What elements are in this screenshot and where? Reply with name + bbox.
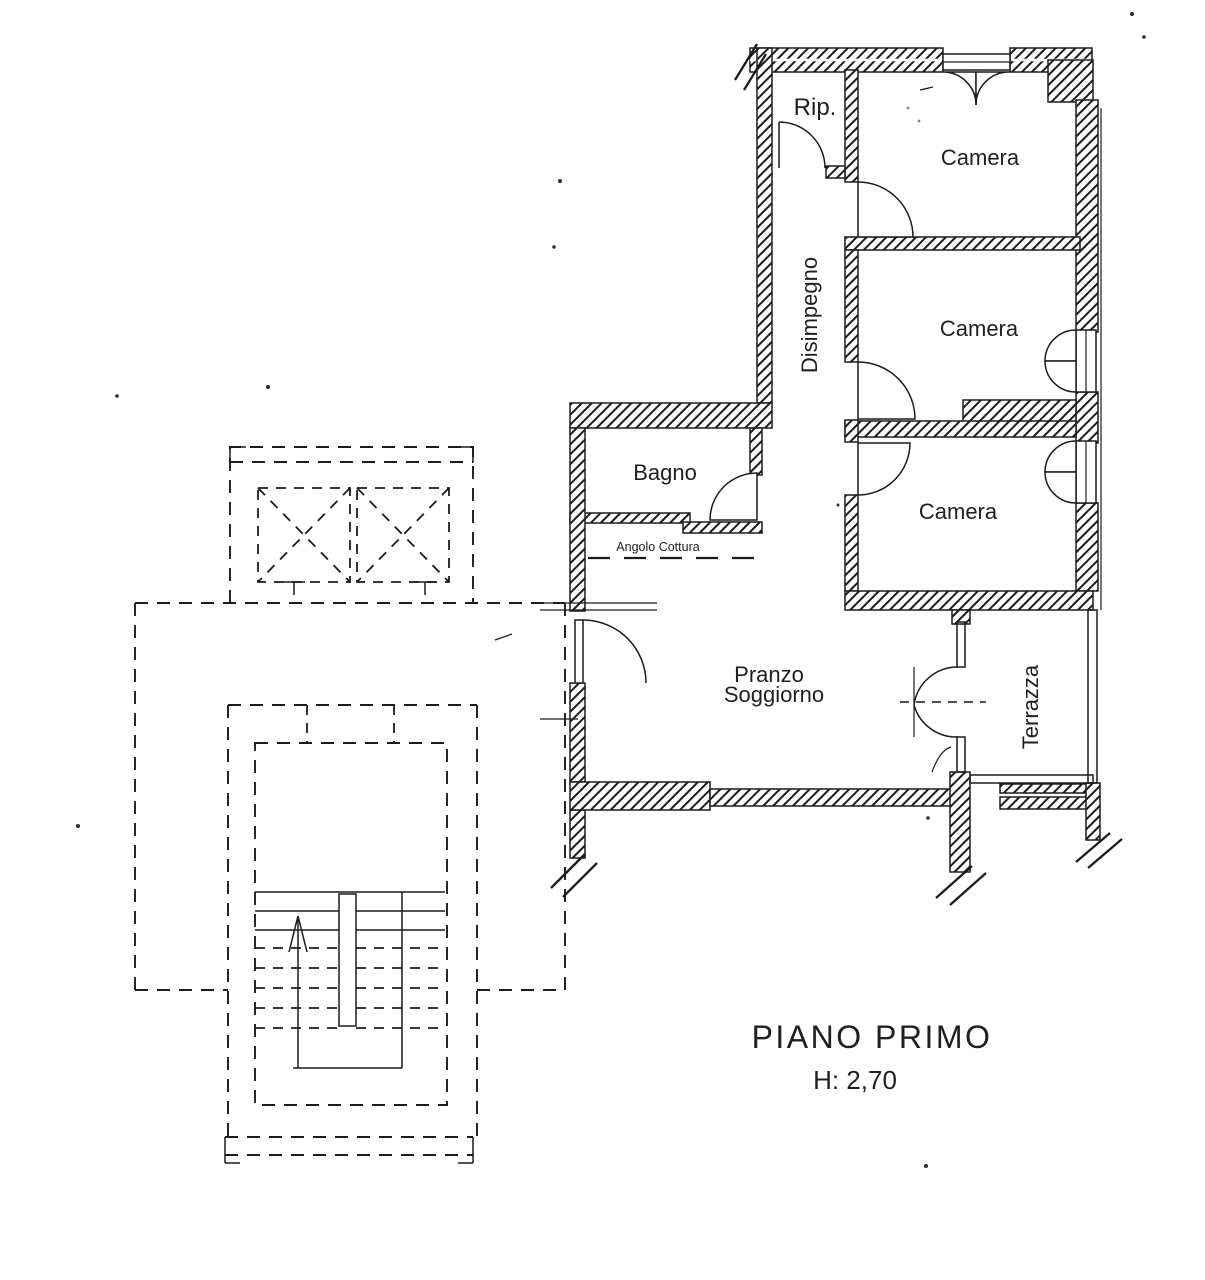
wall-left-stub [570,810,585,858]
wall-corridor-c [845,420,858,442]
window-camera-top [943,54,1010,105]
label-angolo-cottura: Angolo Cottura [616,540,699,554]
label-soggiorno: Soggiorno [724,682,824,707]
casement-up [1045,330,1076,361]
door-entry [540,603,657,683]
elevator-door-mark [414,582,436,595]
plan-title: PIANO PRIMO [752,1019,993,1055]
door-camera-top [858,182,913,237]
elevator-shafts [230,447,473,603]
wall-right-stub [1086,783,1100,840]
stair-up-arrow [289,916,307,1068]
wall-left-upper [757,48,772,403]
shaft-corner-brackets [230,447,473,463]
label-camera-middle: Camera [940,316,1019,341]
wall-bagno-top [570,403,772,428]
wall-left-low [570,683,585,782]
parapet-right [1088,610,1097,783]
wall-terrazza-bottom-b [1000,797,1092,809]
wall-rip-stub [826,166,845,178]
door-bagno [710,473,757,520]
wall-camera2-camera3-step [963,400,1076,423]
stairs [255,892,445,1068]
floor-plan-scan: Rip. Camera Camera Camera Disimpegno Bag… [0,0,1205,1280]
casement-up [1045,441,1076,472]
shaft-outline [230,447,473,603]
floor-plan-canvas: Rip. Camera Camera Camera Disimpegno Bag… [0,0,1205,1280]
label-camera-top: Camera [941,145,1020,170]
wall-bagno-floor-a [570,513,690,523]
label-rip: Rip. [794,94,837,121]
wall-right-lower [1076,503,1098,591]
glazed-wall-upper [957,622,965,667]
stray-arc [932,747,951,772]
casement-right [976,72,1010,105]
wall-terrazza-bottom-a [1000,784,1092,793]
window-camera-bottom [1045,441,1096,503]
elevator-left [258,488,350,595]
door-camera-middle [858,362,915,419]
wall-corner-ne [1048,60,1093,102]
label-bagno: Bagno [633,460,697,485]
wall-south-thin [710,789,952,806]
wall-right-upper [1076,100,1098,332]
wall-left-mid [570,428,585,611]
wall-bagno-floor-b [683,522,762,533]
label-disimpegno: Disimpegno [797,257,822,373]
glazed-wall-lower [957,737,965,772]
elevator-right [357,488,449,595]
wall-camera1-camera2 [845,237,1080,250]
door-rip [779,122,825,168]
window-camera-middle [1045,330,1096,392]
elevator-door-mark [283,582,305,595]
wall-terrazza-top [845,591,1093,610]
stairwell-corner-brackets [225,1137,473,1163]
scan-specks [76,12,1146,1168]
break-left-wall [551,854,597,897]
wall-camera2-camera3 [845,421,1076,437]
wall-corridor-a [845,70,858,182]
wall-corridor-b [845,250,858,362]
wall-corridor-d [845,495,858,591]
casement-left [943,72,976,105]
wall-pillar-south [950,772,970,872]
casement-down [1045,361,1076,392]
label-terrazza: Terrazza [1018,664,1043,749]
casement-down [1045,472,1076,503]
door-french-terrazza [900,667,986,737]
wall-right-mid [1076,392,1098,443]
stair-spine [339,894,356,1026]
door-camera-bottom [858,443,910,495]
wall-south-thick [570,782,710,810]
wall-bagno-right [750,428,762,475]
plan-height-note: H: 2,70 [813,1065,897,1095]
label-camera-bottom: Camera [919,499,998,524]
parapet-bottom [970,775,1093,783]
